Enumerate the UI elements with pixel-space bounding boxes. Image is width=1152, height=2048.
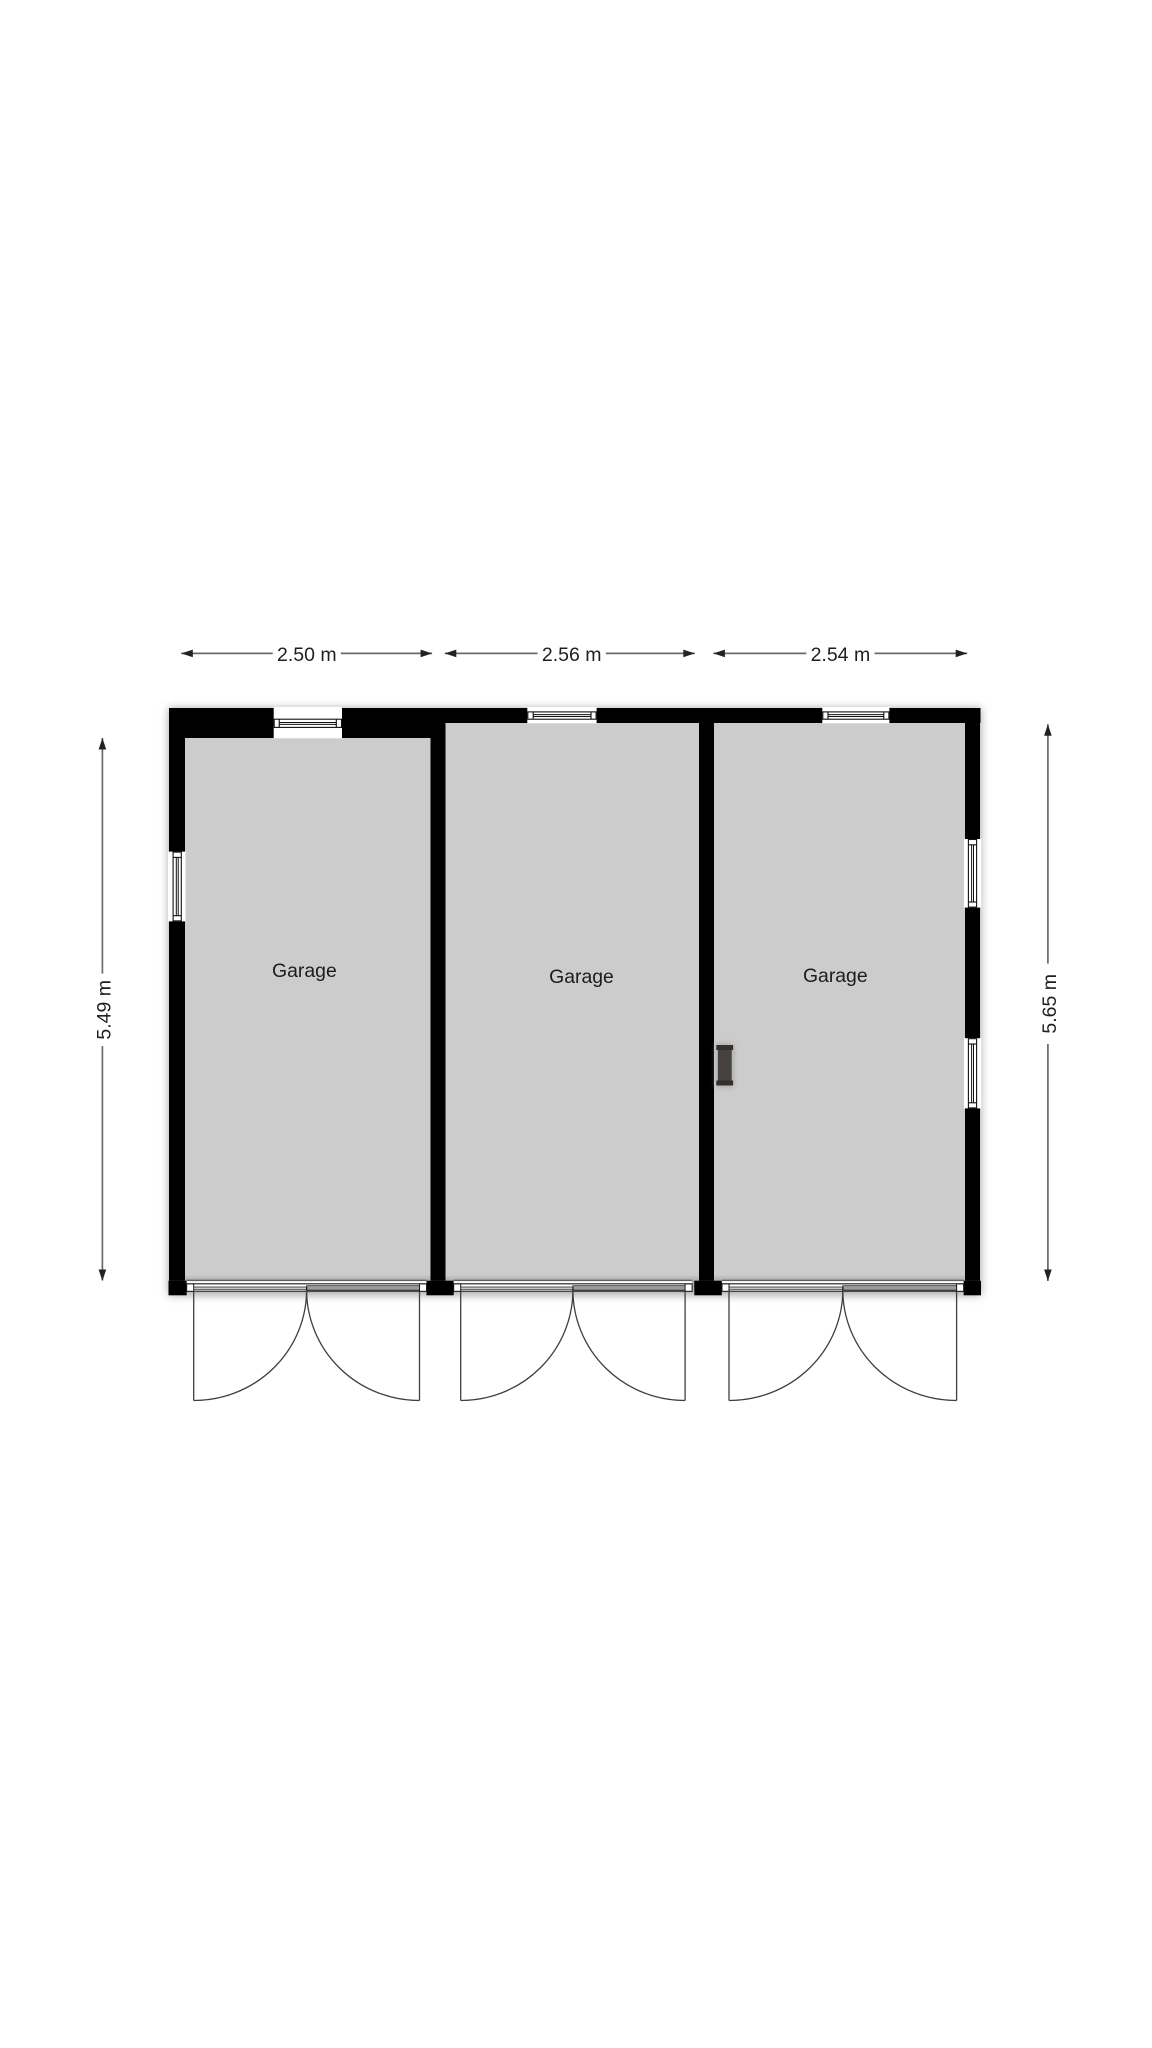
svg-text:2.56 m: 2.56 m xyxy=(542,644,602,666)
svg-text:2.50 m: 2.50 m xyxy=(277,644,337,666)
svg-text:5.65 m: 5.65 m xyxy=(1039,974,1061,1034)
svg-text:Garage: Garage xyxy=(272,960,337,982)
svg-text:Garage: Garage xyxy=(803,965,868,987)
svg-text:2.54 m: 2.54 m xyxy=(811,644,871,666)
svg-text:5.49 m: 5.49 m xyxy=(94,980,116,1040)
svg-text:Garage: Garage xyxy=(549,966,614,988)
